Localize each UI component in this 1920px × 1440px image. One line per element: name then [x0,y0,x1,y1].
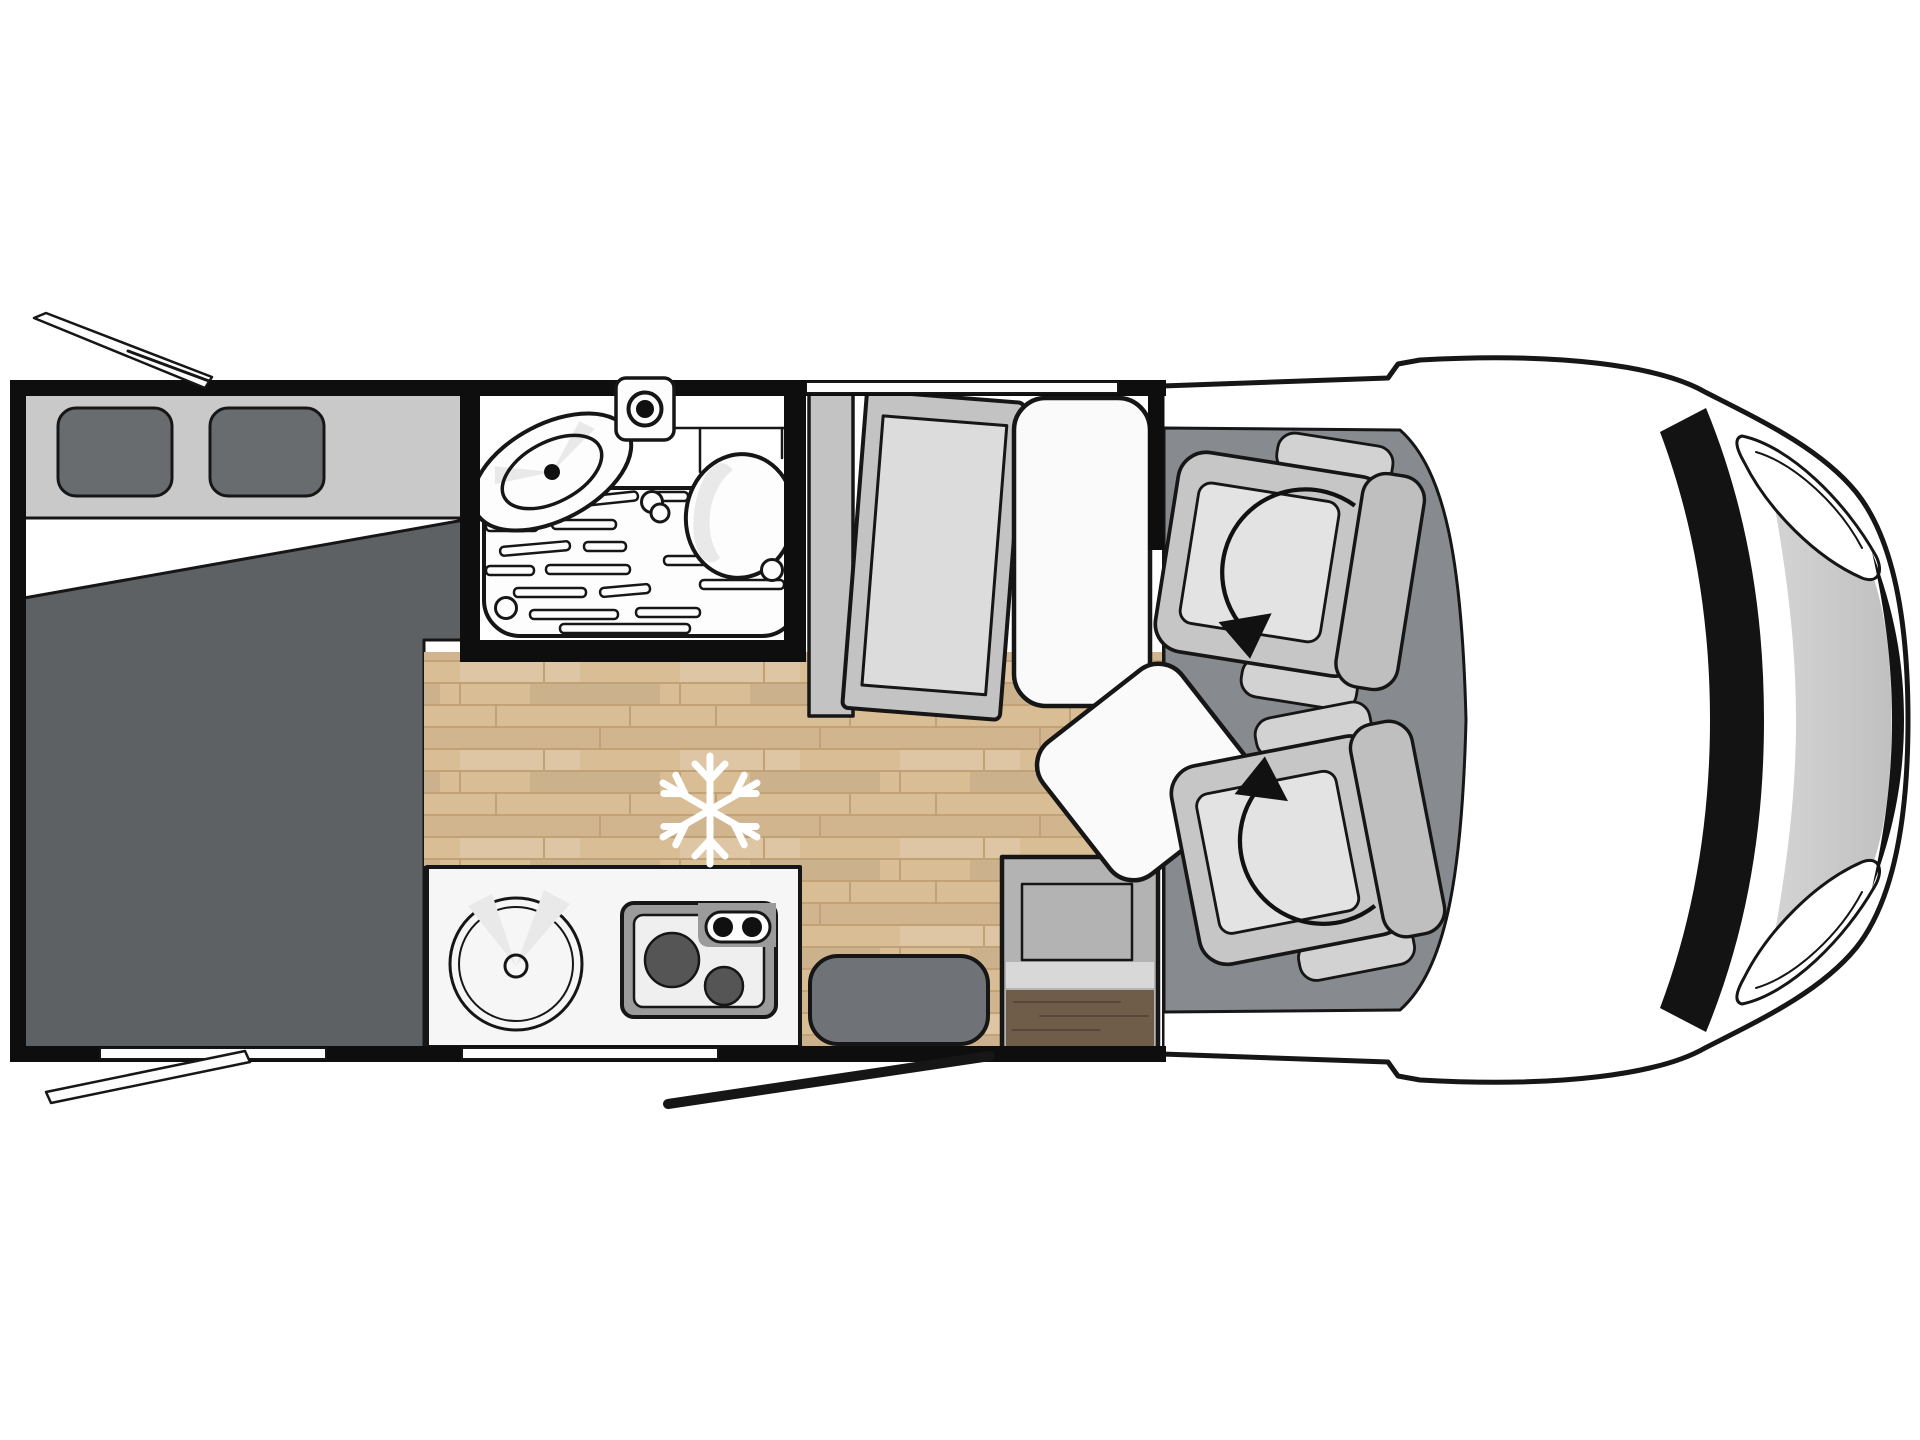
two-burner-hob [622,903,776,1017]
bed-pillow-right [210,408,324,496]
entrance-door [810,956,988,1044]
burner-small [705,967,743,1005]
kitchen-unit [427,867,800,1047]
washroom-wall-bottom [460,640,806,662]
burner-large [645,933,699,987]
entry-cabinet-band [1006,962,1154,988]
roof-vent [616,378,674,440]
hob-knob-1 [713,917,733,937]
door-swing-line [668,1056,990,1104]
dinette-window [806,382,1118,393]
awning-arm-top [34,313,212,388]
washroom-wall-right [784,380,806,662]
hob-knob-2 [742,917,762,937]
basin-drain [651,504,669,522]
shower-drain [496,598,517,619]
cab-bulkhead-stub [1148,380,1164,550]
floorplan-stage [0,0,1920,1440]
entry-cabinet-wood-front [1006,990,1154,1047]
rear-transverse-bed [24,392,464,1048]
wall-left [10,380,26,1062]
motorhome-floorplan [0,0,1920,1440]
basin-tap [762,560,783,581]
wardrobe-inner [862,416,1007,695]
wardrobe [842,391,1024,720]
kitchen-window [462,1048,718,1059]
washroom-wall-left [460,380,480,662]
bed-pillow-left [58,408,172,496]
bed-duvet [24,520,464,1048]
windshield [1660,408,1764,1032]
entry-cabinet [1002,857,1158,1050]
bench-seat [1014,398,1150,706]
